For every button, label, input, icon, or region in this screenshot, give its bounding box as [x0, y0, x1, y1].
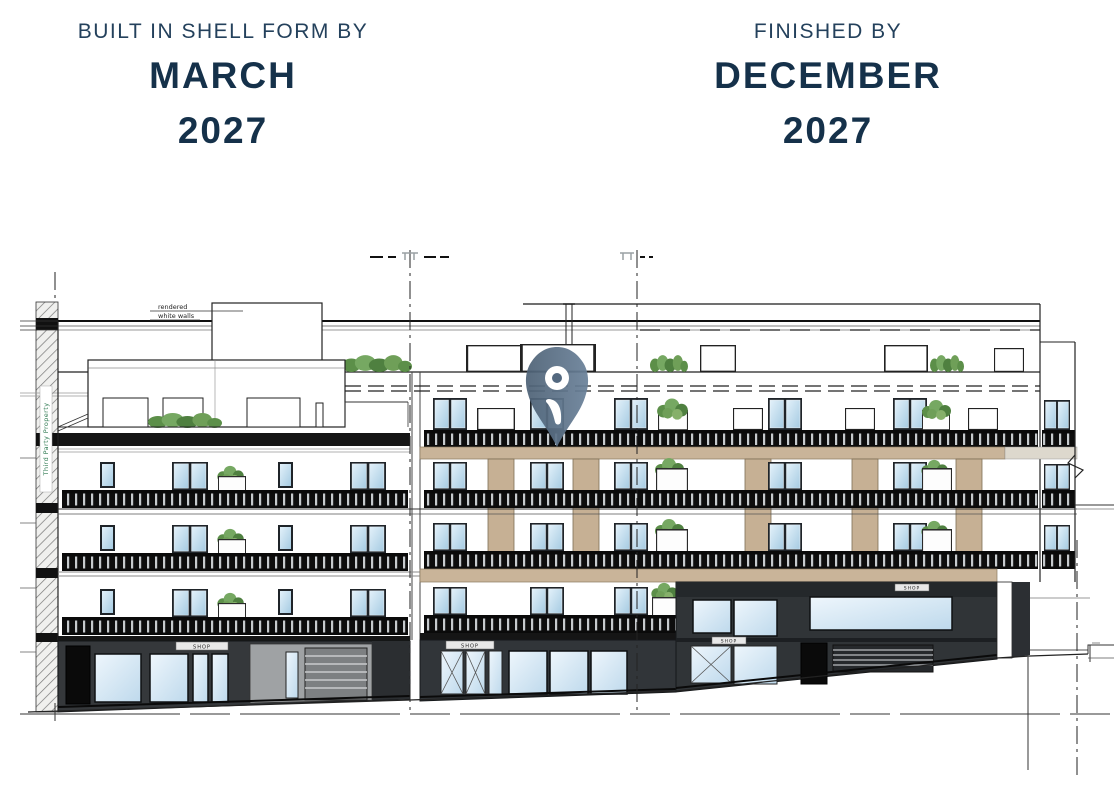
balcony-railing: [62, 553, 408, 571]
window-pair: [893, 462, 927, 490]
shop-window: [693, 600, 731, 633]
shop-window: [286, 652, 298, 698]
balcony-railing: [1042, 490, 1075, 508]
roof-box: [885, 346, 928, 372]
shop-sign-text: SHOP: [721, 639, 738, 645]
shop-window: [734, 600, 777, 636]
window-pair: [172, 525, 208, 553]
window-pair: [172, 462, 208, 490]
roof-box: [467, 346, 525, 372]
balcony-railing: [424, 490, 1038, 508]
roof-hedge: [342, 355, 412, 372]
shop-sign-text: SHOP: [904, 586, 921, 592]
shop-window: [193, 654, 208, 702]
window-pair: [350, 589, 386, 617]
shop-window: [150, 654, 188, 702]
window-single: [100, 589, 115, 615]
shop-window: [550, 651, 588, 694]
page: BUILT IN SHELL FORM BY MARCH 2027 FINISH…: [0, 0, 1114, 800]
terrace-box: [846, 409, 875, 430]
window-pair: [350, 525, 386, 553]
window-pair: [433, 523, 467, 551]
shop-sign-text: SHOP: [461, 643, 479, 649]
rendered-note-line1: rendered: [158, 303, 187, 311]
shop-window: [489, 651, 502, 694]
shop-window: [95, 654, 141, 702]
shop-window: [212, 654, 228, 702]
window-pair: [893, 398, 927, 430]
window-single: [278, 525, 293, 551]
balcony-railing: [424, 551, 1038, 569]
window-pair: [1044, 400, 1070, 430]
balcony-railing: [62, 617, 408, 635]
window-pair: [768, 462, 802, 490]
window-pair: [530, 462, 564, 490]
elevation-drawing: Third Party Property rendered white wall…: [0, 0, 1114, 800]
window-pair: [614, 398, 648, 430]
terrace-box: [734, 409, 763, 430]
balcony-railing: [424, 615, 676, 633]
window-pair: [433, 462, 467, 490]
shop-window: [509, 651, 547, 694]
window-pair: [350, 462, 386, 490]
window-pair: [768, 398, 802, 430]
roller-shutter: [833, 645, 933, 672]
window-pair: [893, 523, 927, 551]
terrace-box: [478, 409, 515, 430]
window-pair: [172, 589, 208, 617]
window-single: [278, 589, 293, 615]
terrace-box: [969, 409, 998, 430]
window-pair: [614, 587, 648, 615]
floor4-right: [345, 386, 1070, 430]
window-pair: [1044, 464, 1070, 490]
window-pair: [614, 462, 648, 490]
roof-hedge: [930, 355, 964, 372]
shop-door: [66, 646, 90, 704]
roof-box: [701, 346, 736, 372]
party-wall-label: Third Party Property: [42, 403, 50, 477]
roof-box: [995, 349, 1024, 372]
window-single: [100, 525, 115, 551]
rendered-note-line2: white walls: [158, 312, 195, 320]
window-pair: [530, 523, 564, 551]
balcony-railing: [62, 490, 408, 508]
window-single: [100, 462, 115, 488]
balcony-railing: [1042, 551, 1075, 569]
window-single: [278, 462, 293, 488]
floor2: [58, 519, 1075, 582]
survey-marker: [620, 253, 634, 260]
shop-window: [591, 651, 627, 694]
window-pair: [530, 587, 564, 615]
top-markers: [370, 253, 653, 260]
roof-hedge: [650, 355, 688, 372]
stair-bulkhead: [212, 303, 322, 367]
window-pair: [1044, 525, 1070, 551]
window-pair: [433, 587, 467, 615]
penthouse-left: [58, 360, 410, 452]
window-pair: [614, 523, 648, 551]
window-pair: [768, 523, 802, 551]
shop-sign-text: SHOP: [193, 644, 211, 650]
shop-window: [810, 597, 952, 630]
floor3: [58, 458, 1077, 514]
window-pair: [433, 398, 467, 430]
floor1: [58, 583, 681, 641]
